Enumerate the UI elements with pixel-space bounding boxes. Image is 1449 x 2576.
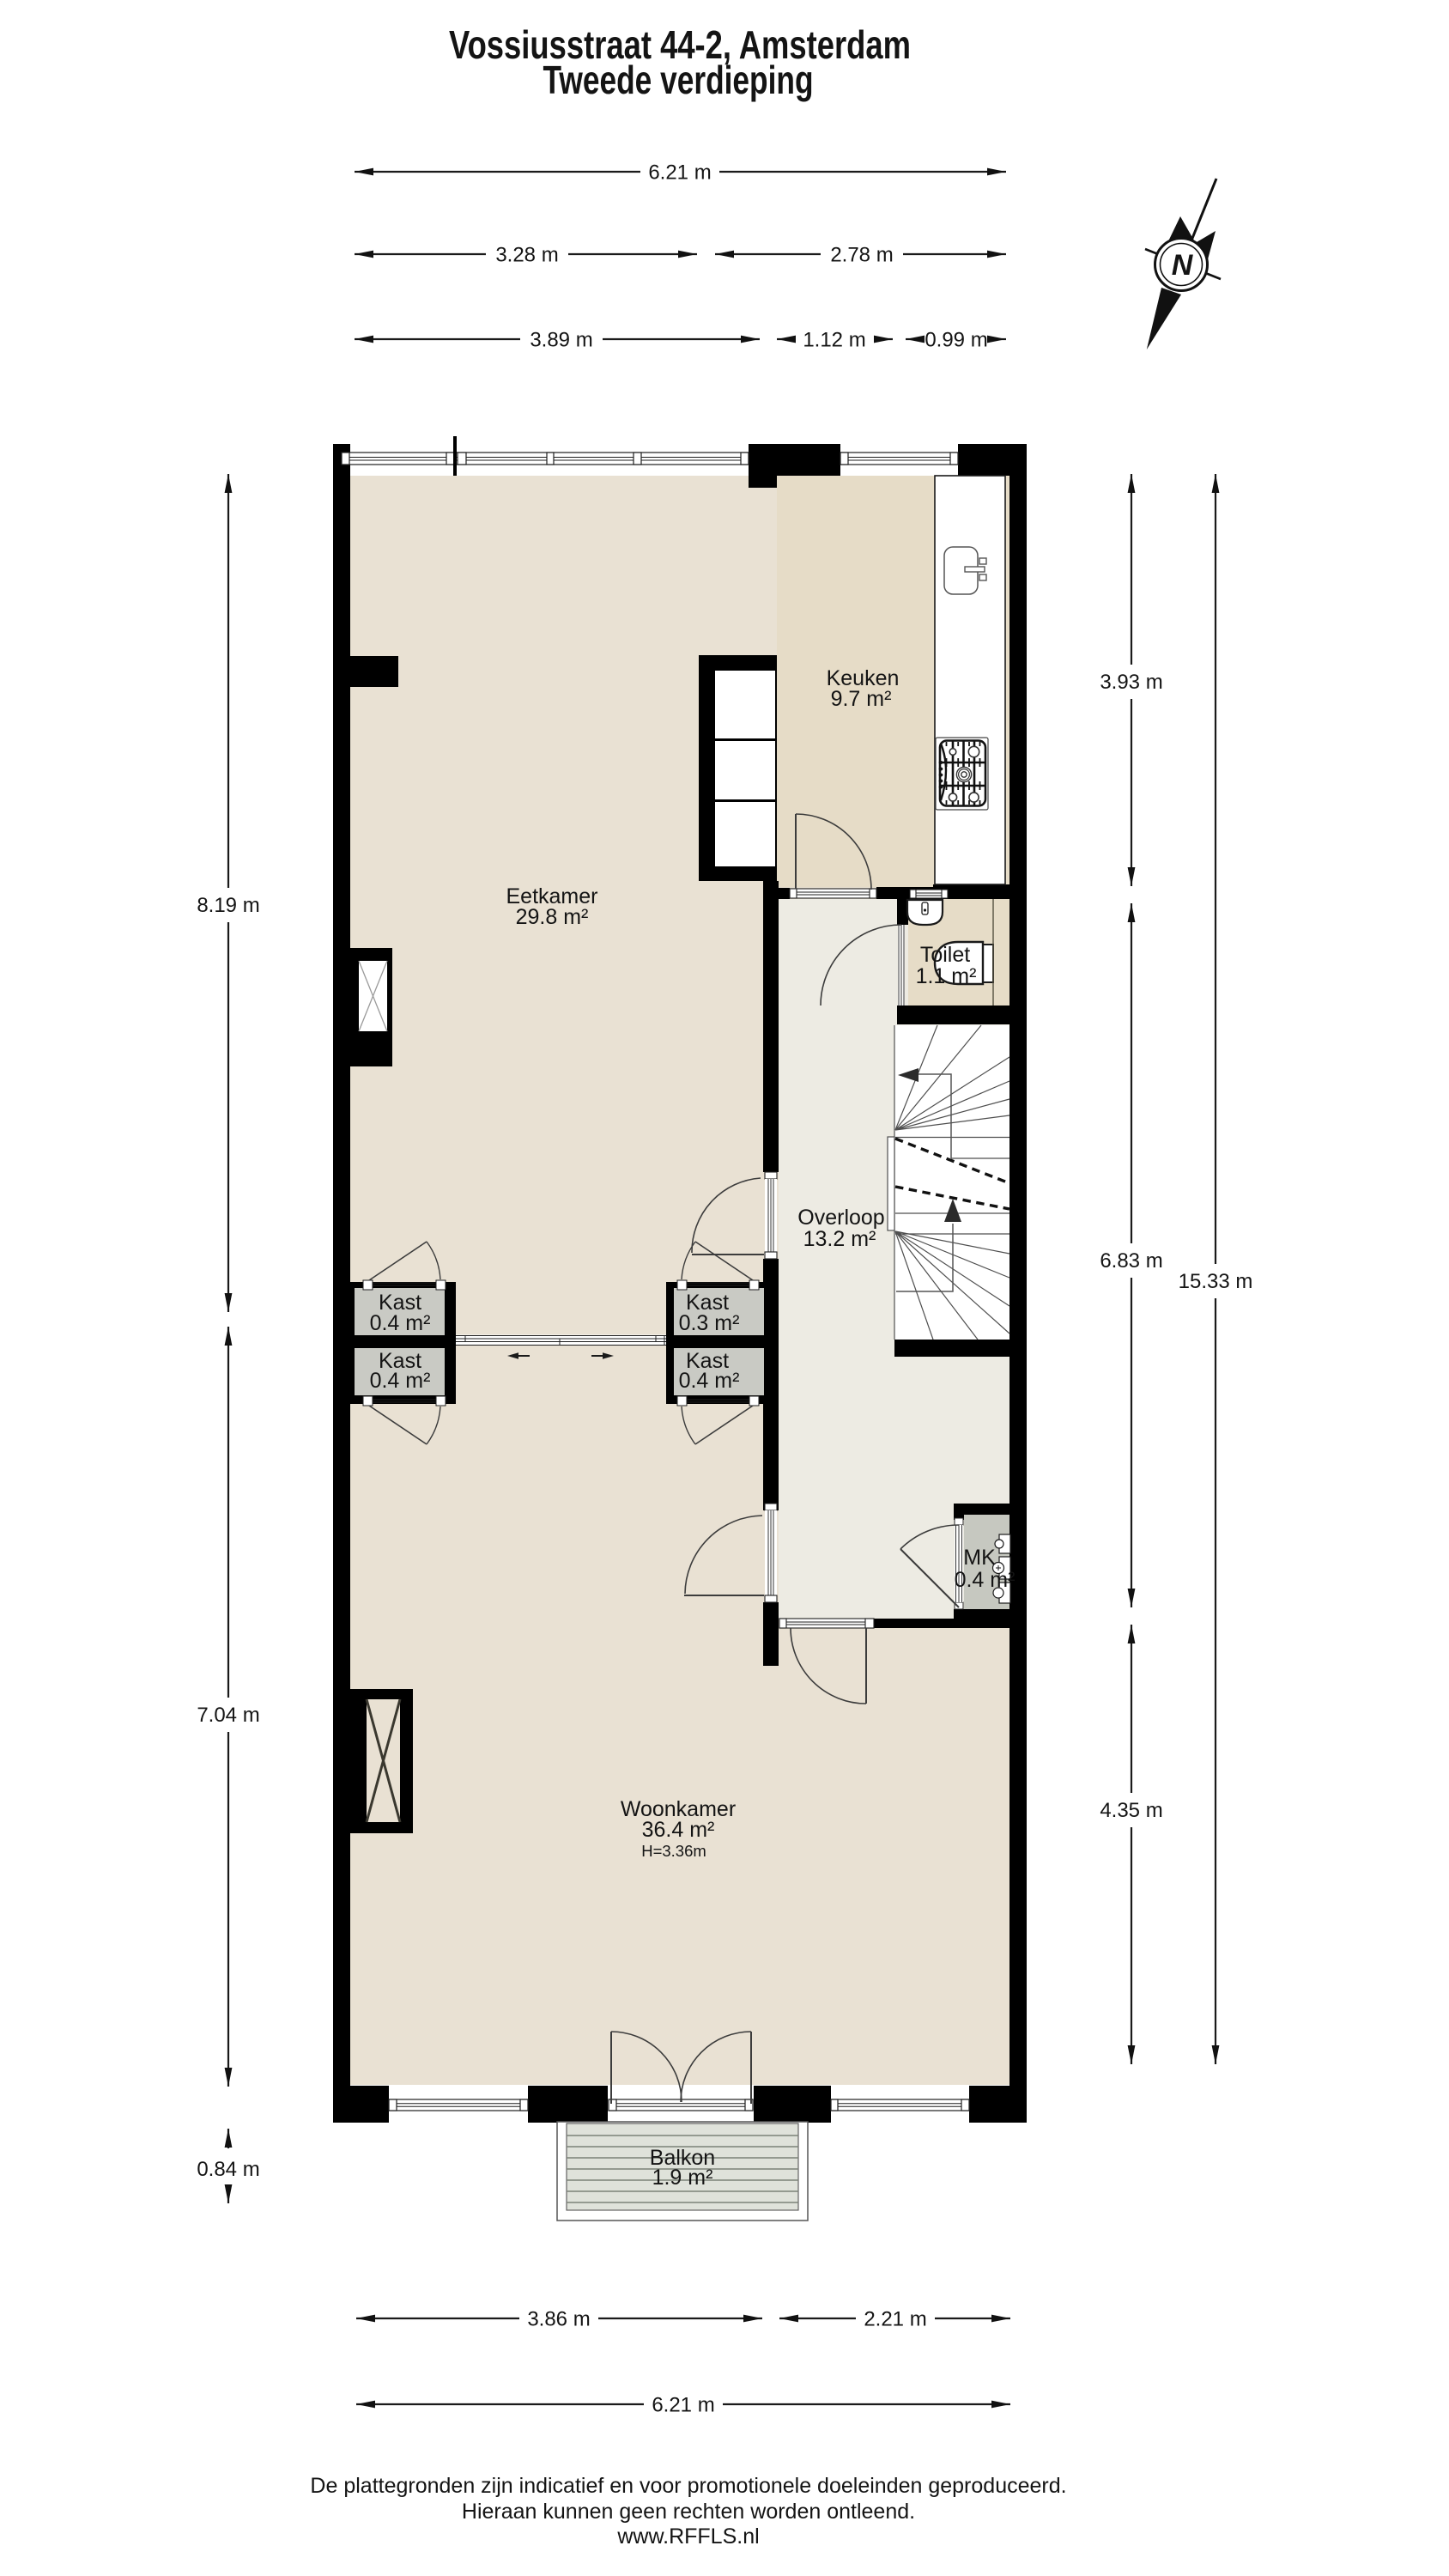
svg-text:15.33 m: 15.33 m [1179,1270,1253,1293]
svg-text:2.78 m: 2.78 m [830,244,893,267]
svg-text:Toilet: Toilet [920,943,970,967]
svg-text:3.93 m: 3.93 m [1100,671,1162,694]
svg-text:3.28 m: 3.28 m [495,244,558,267]
svg-text:1.9 m²: 1.9 m² [652,2166,713,2190]
svg-text:N: N [1172,249,1194,282]
svg-text:3.86 m: 3.86 m [527,2308,590,2331]
svg-text:Hieraan kunnen geen rechten wo: Hieraan kunnen geen rechten worden ontle… [462,2500,915,2524]
svg-text:6.21 m: 6.21 m [648,161,711,185]
svg-text:Tweede verdieping: Tweede verdieping [543,58,814,102]
svg-text:0.4 m²: 0.4 m² [679,1369,740,1393]
svg-text:7.04 m: 7.04 m [197,1704,259,1727]
svg-text:0.3 m²: 0.3 m² [679,1311,740,1335]
svg-text:0.99 m: 0.99 m [925,329,987,352]
svg-text:36.4 m²: 36.4 m² [642,1818,715,1842]
svg-text:De plattegronden zijn indicati: De plattegronden zijn indicatief en voor… [310,2474,1066,2498]
svg-text:0.4 m²: 0.4 m² [955,1568,1016,1592]
svg-text:6.83 m: 6.83 m [1100,1249,1162,1273]
svg-text:H=3.36m: H=3.36m [641,1842,706,1860]
svg-text:3.89 m: 3.89 m [530,329,592,352]
svg-text:0.4 m²: 0.4 m² [370,1311,431,1335]
svg-text:9.7 m²: 9.7 m² [831,687,892,711]
svg-text:Overloop: Overloop [797,1206,884,1230]
svg-text:1.12 m: 1.12 m [803,329,865,352]
svg-text:0.84 m: 0.84 m [197,2158,259,2181]
svg-text:13.2 m²: 13.2 m² [803,1227,876,1251]
svg-text:www.RFFLS.nl: www.RFFLS.nl [616,2524,759,2549]
svg-text:4.35 m: 4.35 m [1100,1799,1162,1822]
svg-text:2.21 m: 2.21 m [864,2308,926,2331]
svg-text:1.1 m²: 1.1 m² [916,964,977,988]
svg-text:8.19 m: 8.19 m [197,894,259,917]
svg-text:0.4 m²: 0.4 m² [370,1369,431,1393]
svg-text:6.21 m: 6.21 m [652,2394,714,2417]
svg-text:29.8 m²: 29.8 m² [516,905,589,929]
svg-text:MK: MK [963,1546,996,1570]
